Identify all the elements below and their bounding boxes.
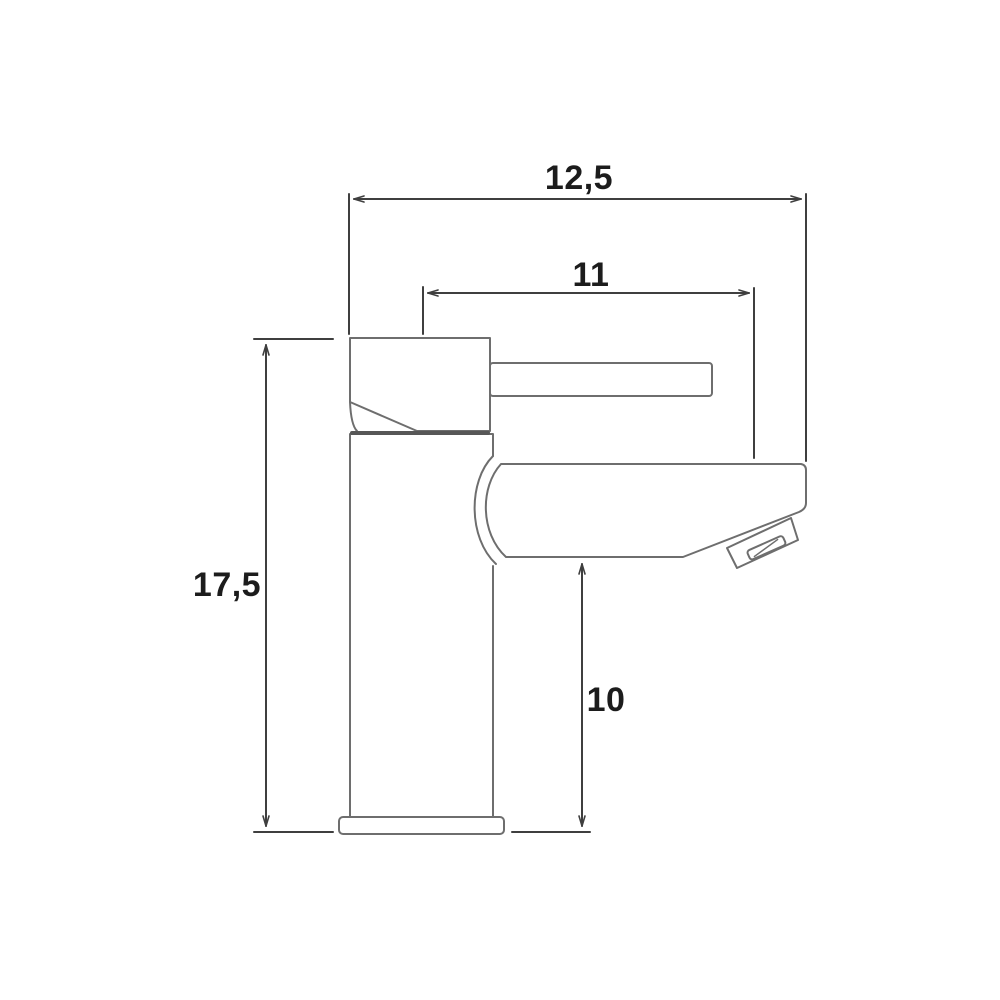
handle-corner-facet bbox=[350, 402, 357, 431]
base-plate bbox=[339, 817, 504, 834]
dimension-label-spout-clearance: 10 bbox=[587, 681, 626, 719]
dimension-label-spout-reach: 11 bbox=[573, 256, 610, 294]
faucet-handle-block bbox=[350, 338, 490, 431]
diagram-canvas: 12,5 11 17,5 10 bbox=[0, 0, 1000, 1000]
dimension-label-total-width: 12,5 bbox=[545, 159, 613, 197]
faucet-drawing bbox=[339, 338, 806, 834]
faucet-lever bbox=[490, 363, 712, 396]
dimension-label-total-height: 17,5 bbox=[193, 566, 261, 604]
faucet-dimension-drawing: 12,5 11 17,5 10 bbox=[0, 0, 1000, 1000]
dimension-spout-clearance bbox=[512, 564, 590, 832]
faucet-column bbox=[350, 434, 493, 818]
dimension-total-height bbox=[254, 339, 333, 832]
